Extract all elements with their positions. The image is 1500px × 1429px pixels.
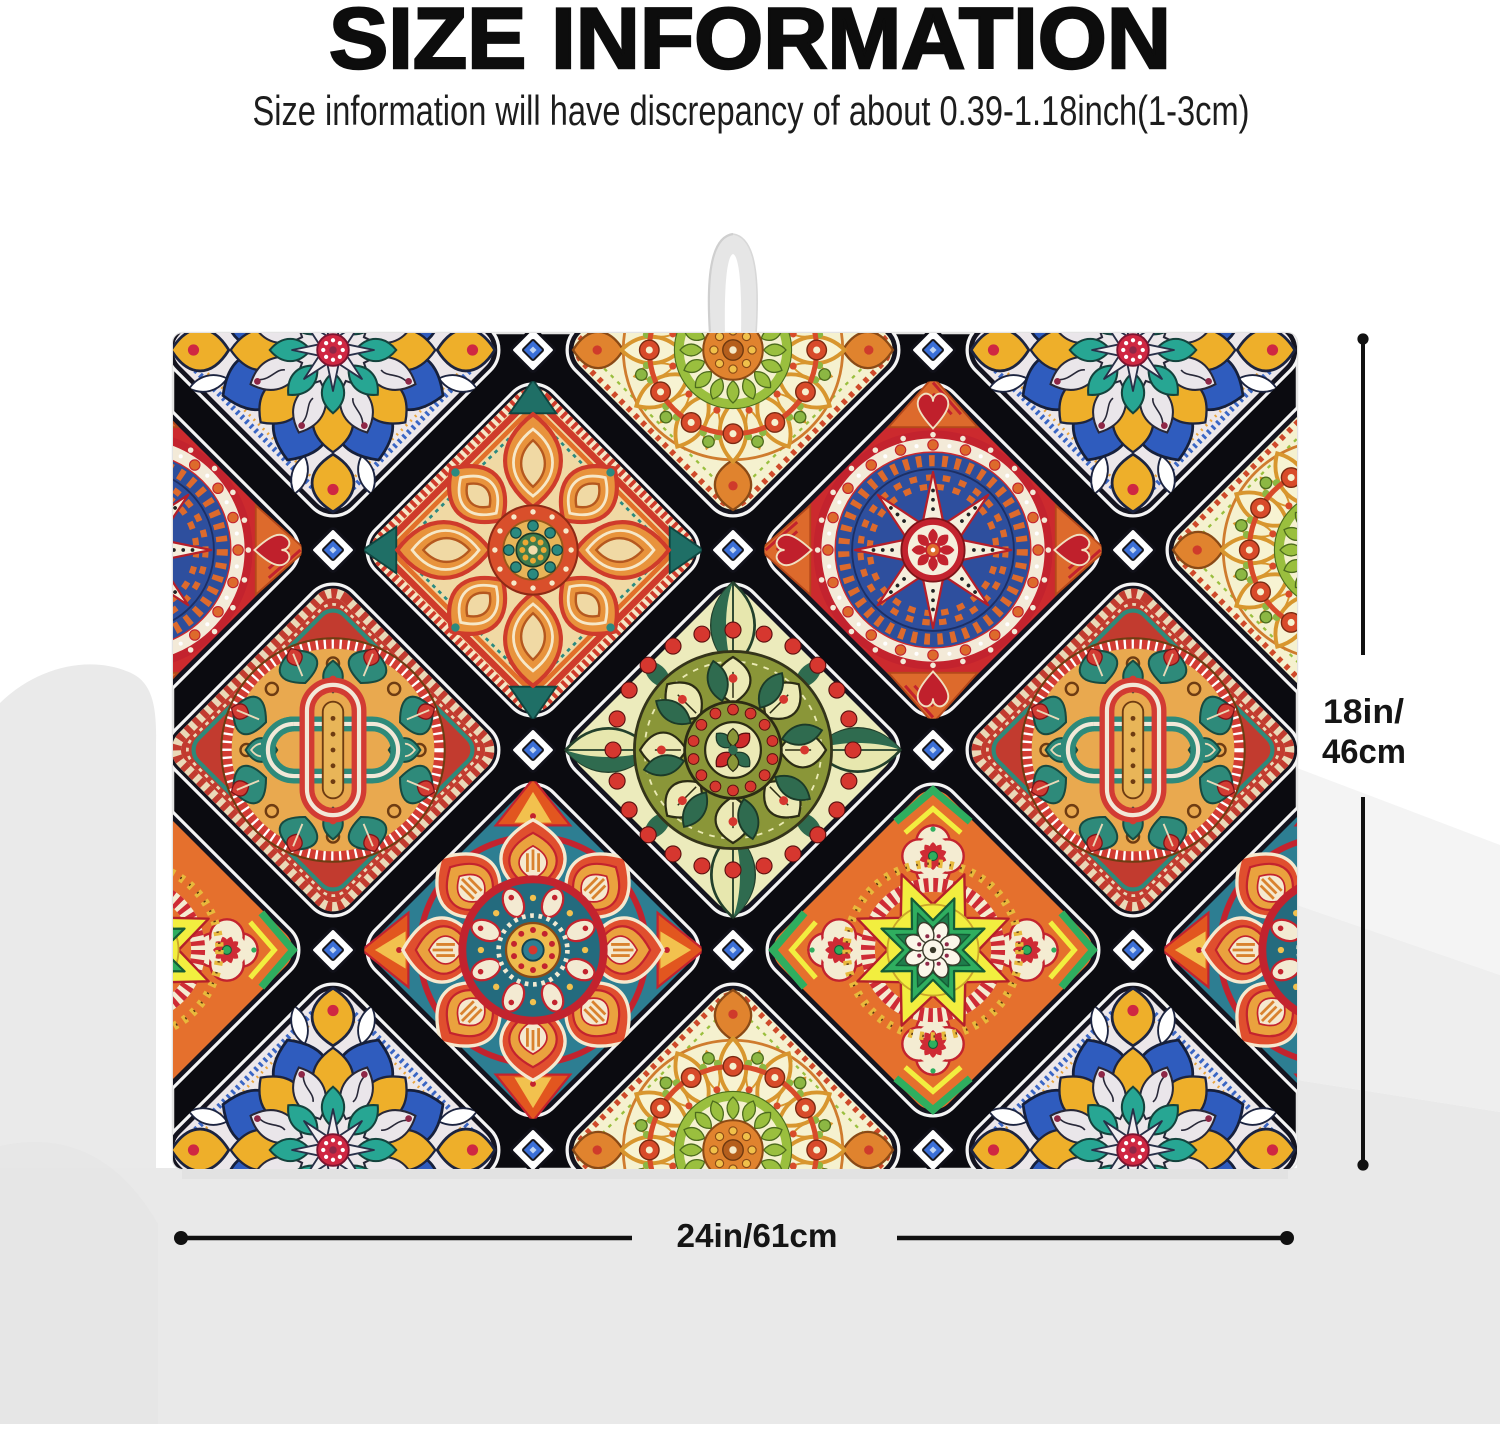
- svg-text:24in/61cm: 24in/61cm: [677, 1217, 838, 1254]
- svg-text:Size information will have dis: Size information will have discrepancy o…: [253, 87, 1250, 134]
- svg-text:18in/: 18in/: [1323, 693, 1405, 731]
- svg-text:SIZE INFORMATION: SIZE INFORMATION: [329, 0, 1171, 87]
- svg-text:46cm: 46cm: [1322, 733, 1406, 771]
